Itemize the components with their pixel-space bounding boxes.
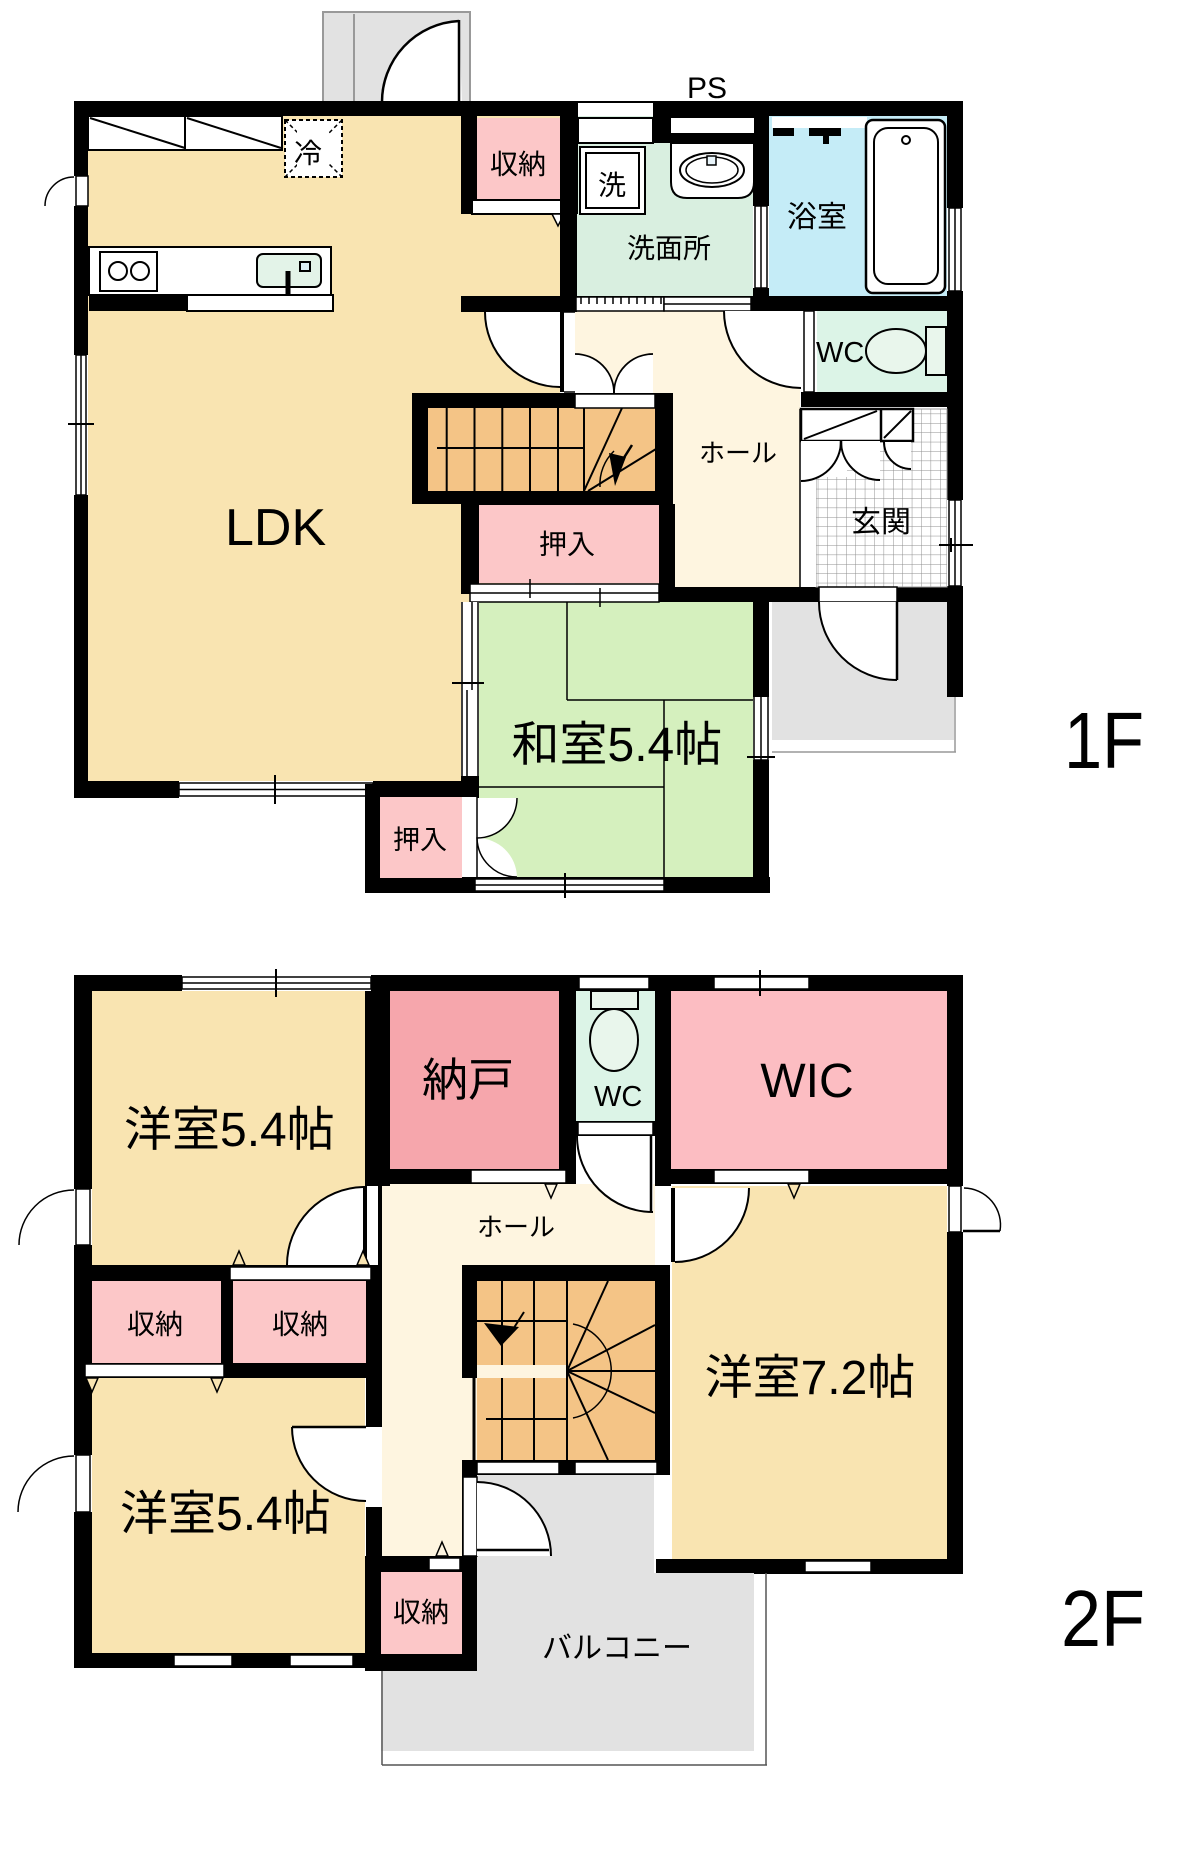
svg-text:1F: 1F xyxy=(1064,696,1144,785)
svg-text:LDK: LDK xyxy=(225,499,326,557)
svg-text:WIC: WIC xyxy=(760,1055,853,1108)
svg-text:2F: 2F xyxy=(1061,1574,1145,1663)
svg-text:WC: WC xyxy=(816,337,864,369)
svg-text:WC: WC xyxy=(594,1081,642,1113)
svg-text:5.4: 5.4 xyxy=(216,1488,283,1541)
svg-text:PS: PS xyxy=(687,72,727,105)
svg-text:7.2: 7.2 xyxy=(801,1352,868,1405)
svg-text:5.4: 5.4 xyxy=(608,719,675,772)
svg-text:5.4: 5.4 xyxy=(220,1104,287,1157)
